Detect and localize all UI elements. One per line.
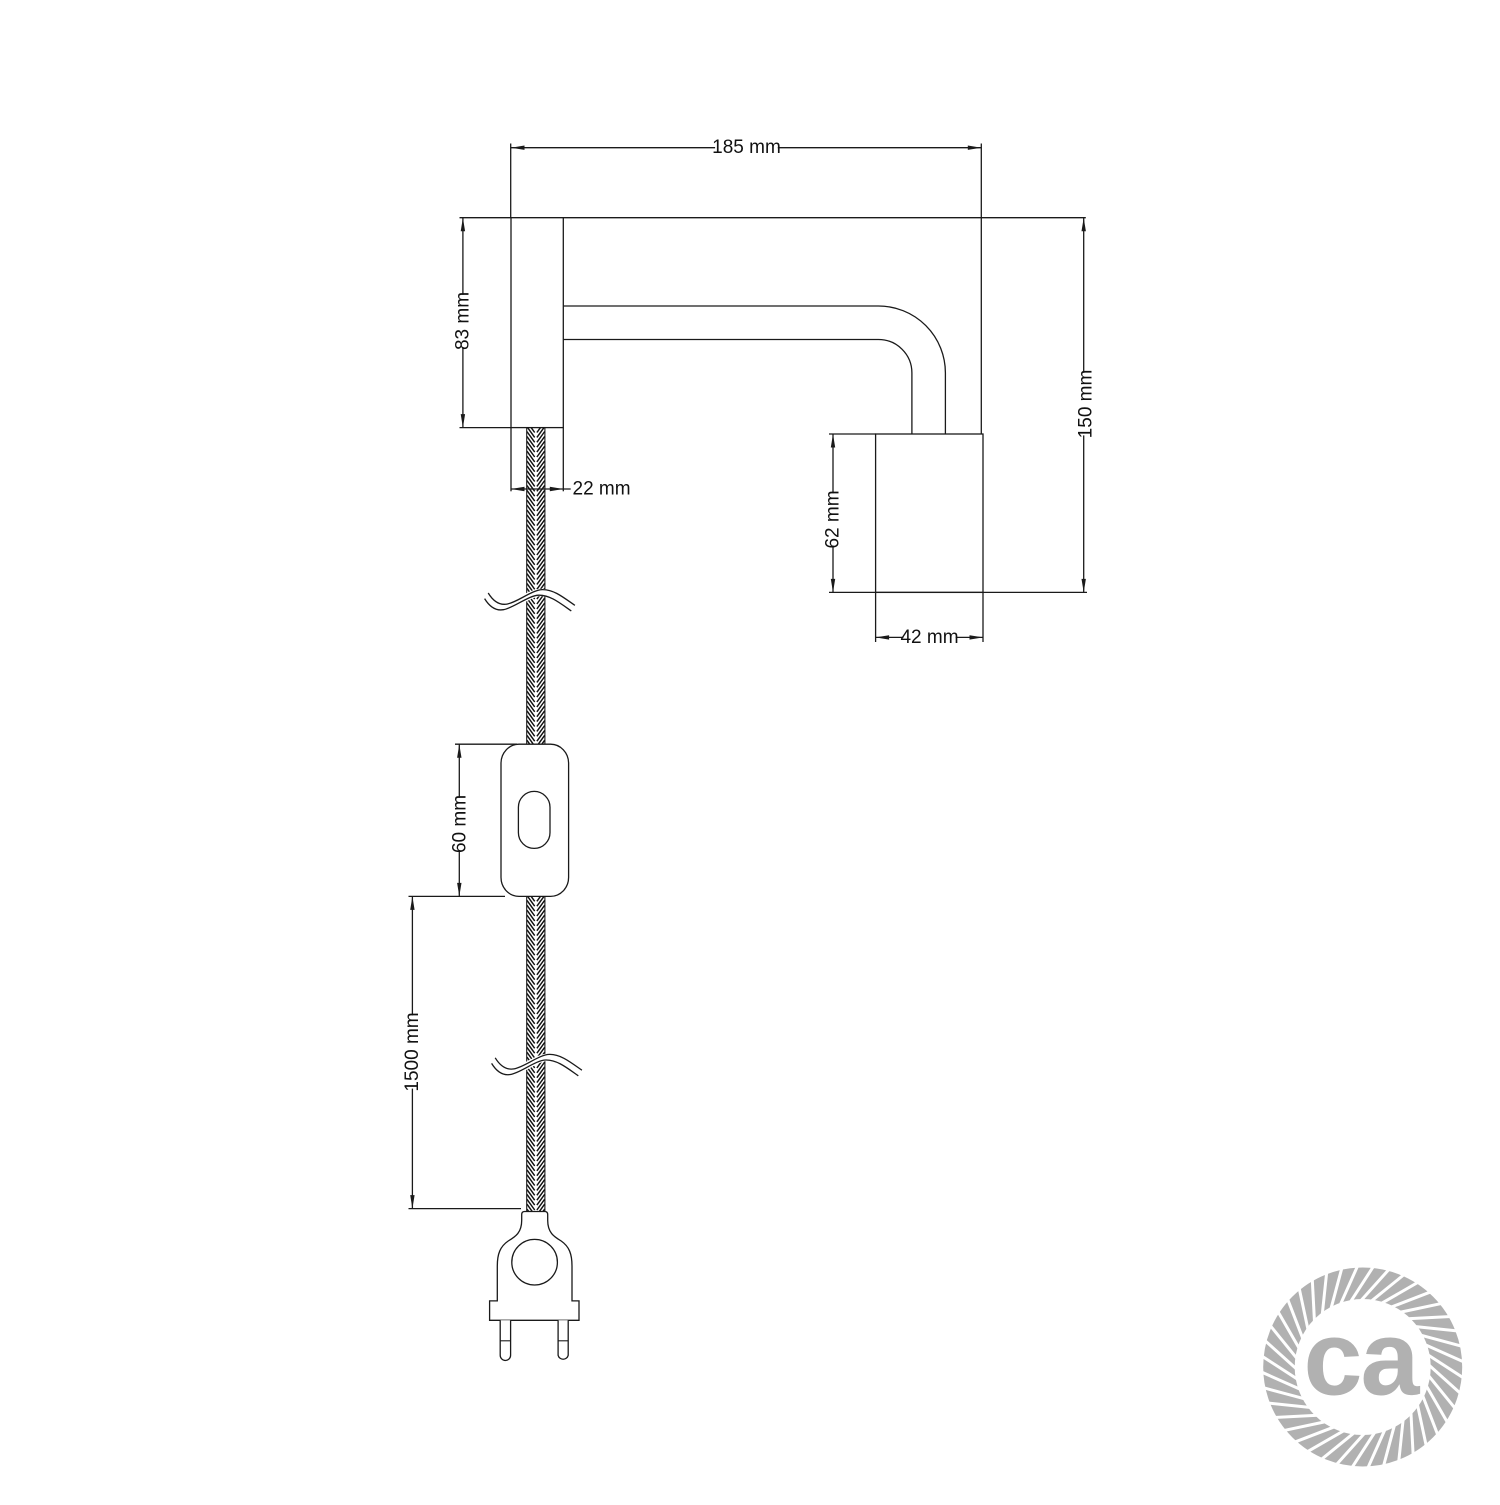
svg-text:42 mm: 42 mm [900,627,958,648]
svg-text:22 mm: 22 mm [573,479,631,500]
svg-text:83 mm: 83 mm [452,292,473,350]
svg-text:62 mm: 62 mm [823,490,844,548]
svg-text:150 mm: 150 mm [1076,370,1097,439]
svg-text:ca: ca [1304,1300,1421,1418]
svg-text:185 mm: 185 mm [712,137,781,158]
svg-text:60 mm: 60 mm [450,795,471,853]
svg-text:1500 mm: 1500 mm [402,1012,423,1091]
